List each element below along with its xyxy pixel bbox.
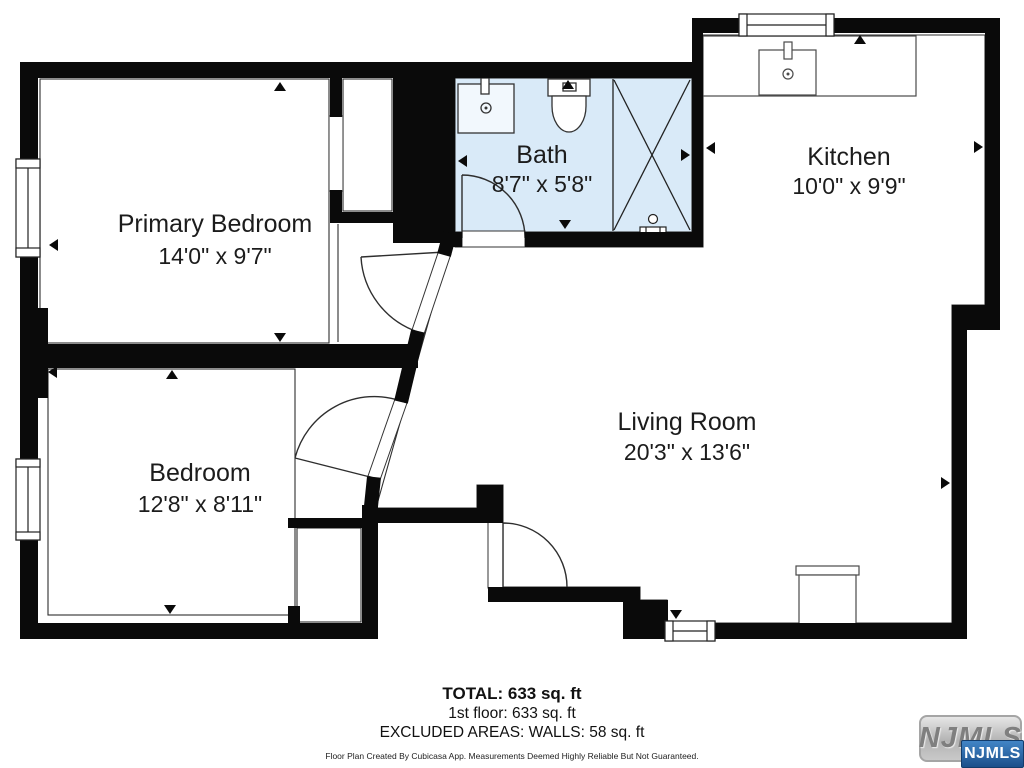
appliance-icon [796, 566, 859, 625]
area-summary: TOTAL: 633 sq. ft 1st floor: 633 sq. ft … [0, 684, 1024, 761]
bedroom-label: Bedroom [149, 459, 250, 487]
bath-dimensions: 8'7" x 5'8" [492, 171, 593, 197]
floor-plan-page: Primary Bedroom 14'0" x 9'7" Bedroom 12'… [0, 0, 1024, 768]
primary-bedroom-label: Primary Bedroom [118, 210, 313, 238]
bedroom-nook-outline [297, 528, 361, 622]
bath-label: Bath [516, 141, 567, 169]
njmls-watermark-blue: NJMLS [961, 740, 1024, 768]
floor-plan-drawing: Primary Bedroom 14'0" x 9'7" Bedroom 12'… [0, 0, 1024, 768]
bedroom-window-icon [16, 459, 40, 540]
closet-outline [343, 79, 392, 211]
living-room-label: Living Room [618, 408, 757, 436]
living-room-window-icon [665, 621, 715, 641]
bedroom-dimensions: 12'8" x 8'11" [138, 491, 262, 517]
entry-door-arc [503, 523, 567, 587]
total-area-text: TOTAL: 633 sq. ft [0, 684, 1024, 705]
bathroom-sink-icon [458, 78, 514, 133]
excluded-area-text: EXCLUDED AREAS: WALLS: 58 sq. ft [0, 724, 1024, 743]
floor-area-text: 1st floor: 633 sq. ft [0, 705, 1024, 724]
primary-bedroom-window-icon [16, 159, 40, 257]
primary-bedroom-door-threshold [412, 250, 451, 334]
kitchen-label: Kitchen [807, 143, 890, 171]
disclaimer-text: Floor Plan Created By Cubicasa App. Meas… [0, 751, 1024, 761]
living-room-dimensions: 20'3" x 13'6" [624, 439, 750, 465]
bath-door-threshold [462, 231, 525, 247]
closet-opening-threshold [329, 116, 343, 191]
kitchen-dimensions: 10'0" x 9'9" [792, 173, 905, 199]
kitchen-window-icon [739, 14, 834, 36]
entry-door-threshold [488, 522, 503, 588]
kitchen-sink-icon [759, 42, 816, 95]
primary-bedroom-dimensions: 14'0" x 9'7" [158, 243, 271, 269]
